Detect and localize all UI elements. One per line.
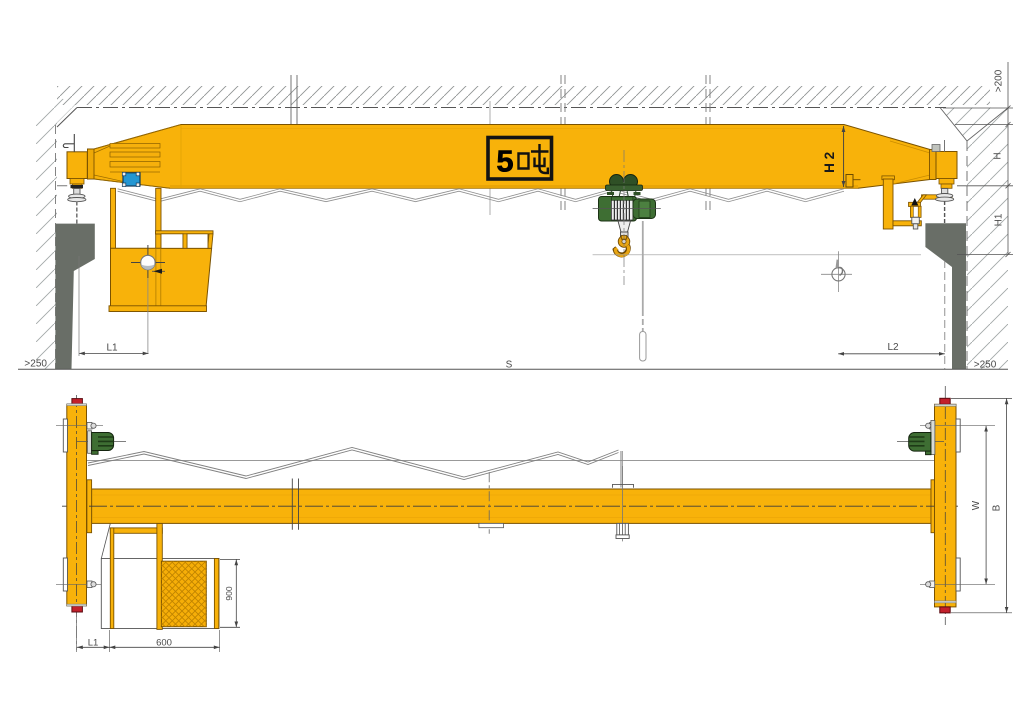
- svg-text:900: 900: [224, 586, 234, 600]
- svg-text:>200: >200: [994, 69, 1005, 92]
- svg-text:>250: >250: [24, 359, 47, 370]
- svg-text:600: 600: [156, 638, 172, 649]
- svg-text:H: H: [993, 152, 1004, 159]
- svg-text:L1: L1: [88, 638, 99, 649]
- svg-text:S: S: [506, 360, 513, 371]
- svg-text:H1: H1: [994, 213, 1005, 226]
- svg-text:5: 5: [496, 144, 513, 179]
- svg-text:>250: >250: [974, 360, 997, 371]
- svg-text:H 2: H 2: [822, 152, 837, 173]
- svg-text:L1: L1: [106, 343, 118, 354]
- svg-text:B: B: [992, 504, 1003, 511]
- svg-text:L2: L2: [887, 342, 899, 353]
- svg-text:W: W: [971, 500, 982, 510]
